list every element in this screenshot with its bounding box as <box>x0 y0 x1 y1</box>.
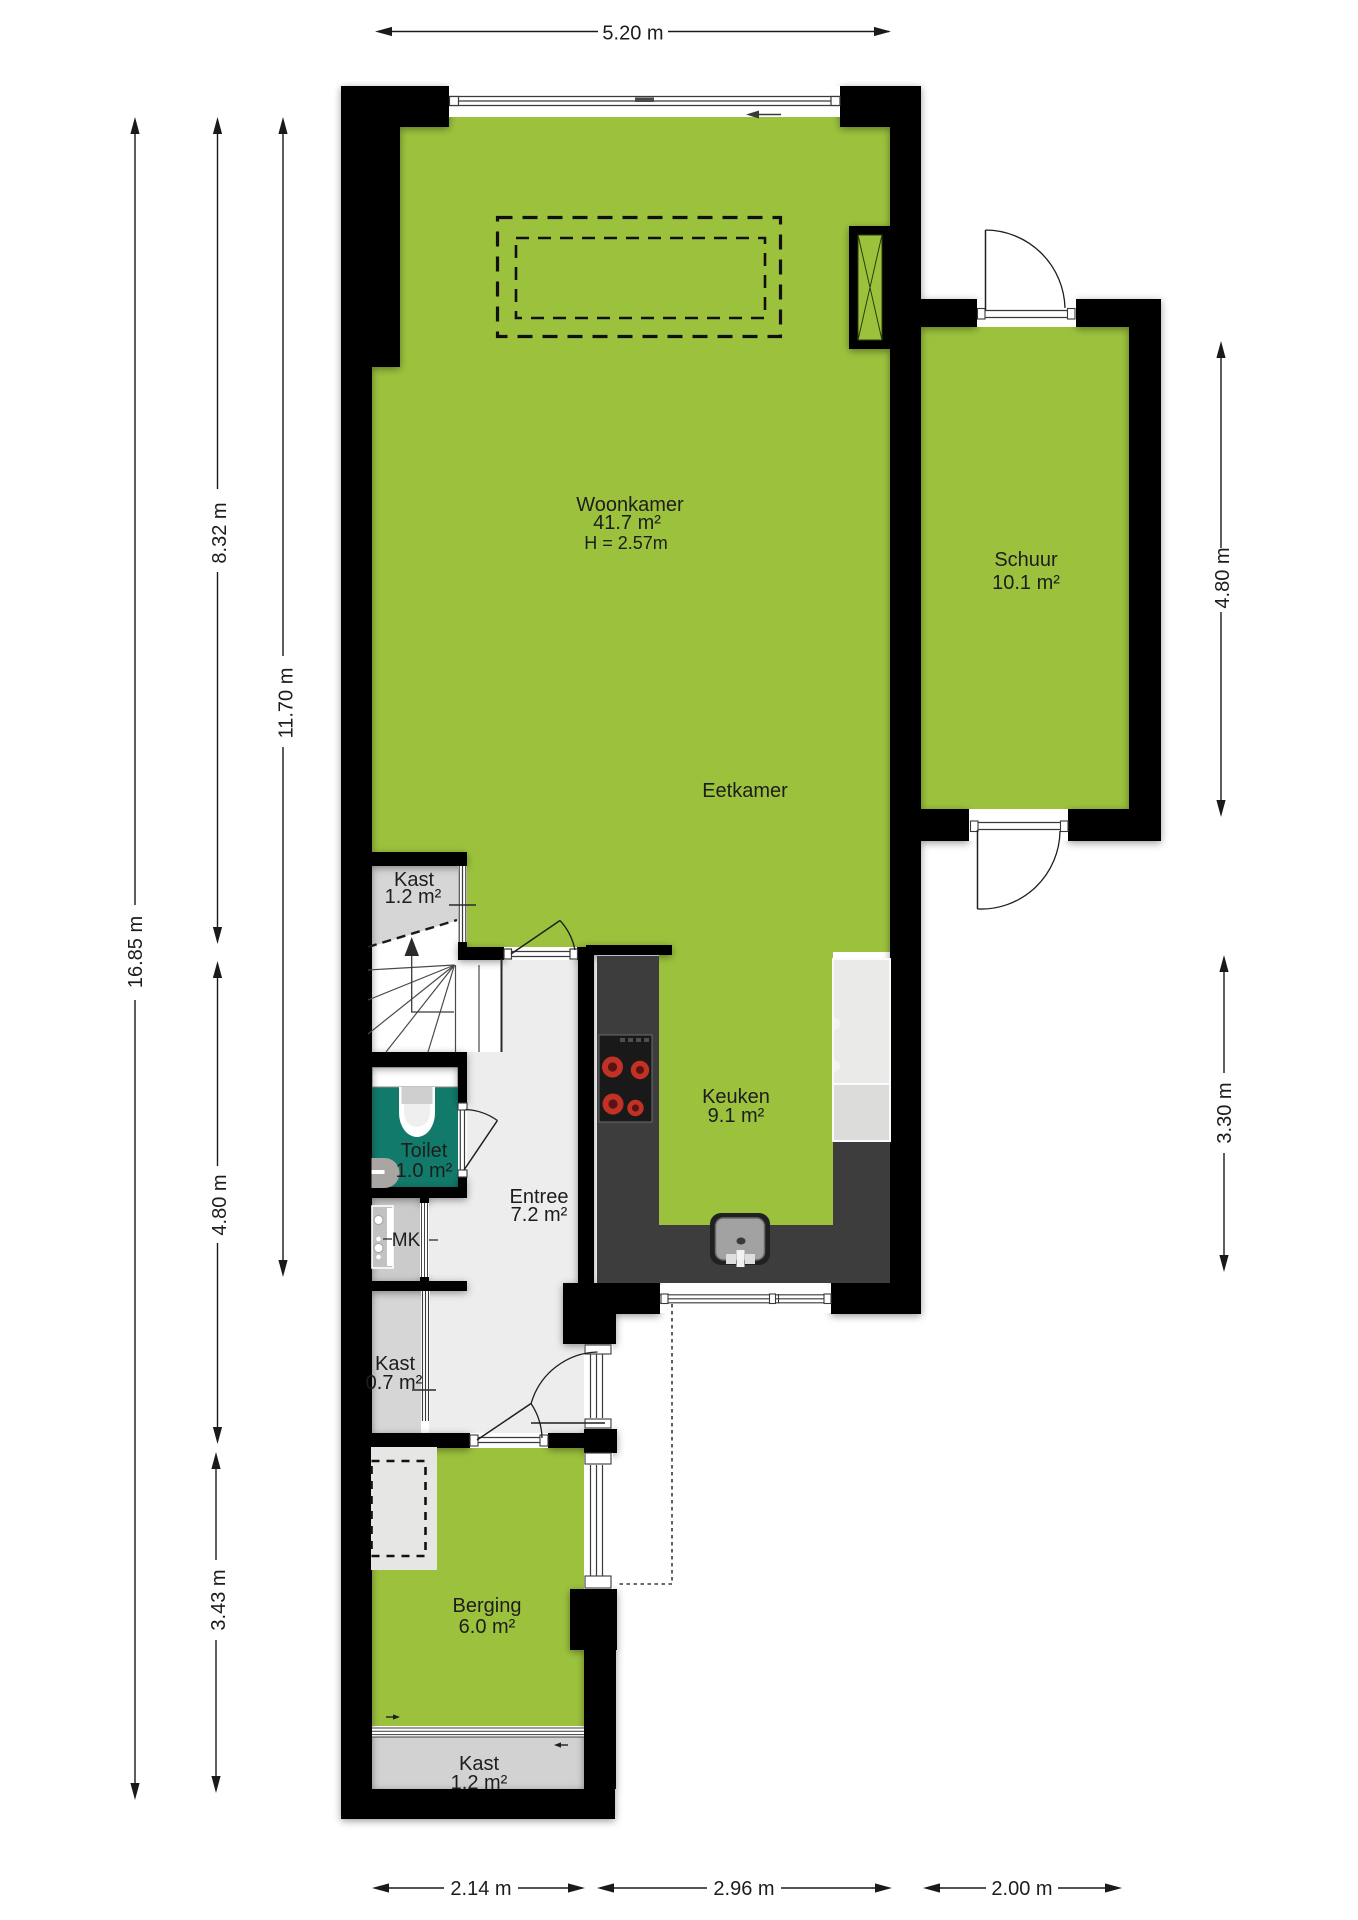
svg-text:MK: MK <box>392 1230 421 1251</box>
svg-text:3.43 m: 3.43 m <box>208 1569 230 1630</box>
svg-text:10.1 m²: 10.1 m² <box>992 572 1060 594</box>
svg-text:Berging: Berging <box>453 1595 522 1617</box>
svg-text:5.20 m: 5.20 m <box>602 23 663 45</box>
svg-text:1.2 m²: 1.2 m² <box>385 886 442 908</box>
svg-text:4.80 m: 4.80 m <box>1212 547 1234 608</box>
svg-text:2.96 m: 2.96 m <box>713 1878 774 1900</box>
svg-text:H = 2.57m: H = 2.57m <box>584 533 668 553</box>
svg-text:2.14 m: 2.14 m <box>450 1878 511 1900</box>
svg-text:2.00 m: 2.00 m <box>991 1878 1052 1900</box>
svg-text:8.32 m: 8.32 m <box>209 502 231 563</box>
svg-text:Eetkamer: Eetkamer <box>702 780 788 802</box>
svg-text:4.80 m: 4.80 m <box>209 1174 231 1235</box>
svg-text:7.2 m²: 7.2 m² <box>511 1204 568 1226</box>
svg-text:3.30 m: 3.30 m <box>1214 1082 1236 1143</box>
svg-text:41.7 m²: 41.7 m² <box>593 512 661 534</box>
svg-text:1.2 m²: 1.2 m² <box>451 1772 508 1794</box>
svg-text:16.85 m: 16.85 m <box>125 916 147 988</box>
svg-text:1.0 m²: 1.0 m² <box>396 1160 453 1182</box>
svg-text:9.1 m²: 9.1 m² <box>708 1105 765 1127</box>
svg-text:0.7 m²: 0.7 m² <box>366 1372 423 1394</box>
svg-text:11.70 m: 11.70 m <box>276 668 298 739</box>
svg-text:Toilet: Toilet <box>401 1140 448 1162</box>
svg-text:Schuur: Schuur <box>994 549 1058 571</box>
svg-text:6.0 m²: 6.0 m² <box>459 1616 516 1638</box>
